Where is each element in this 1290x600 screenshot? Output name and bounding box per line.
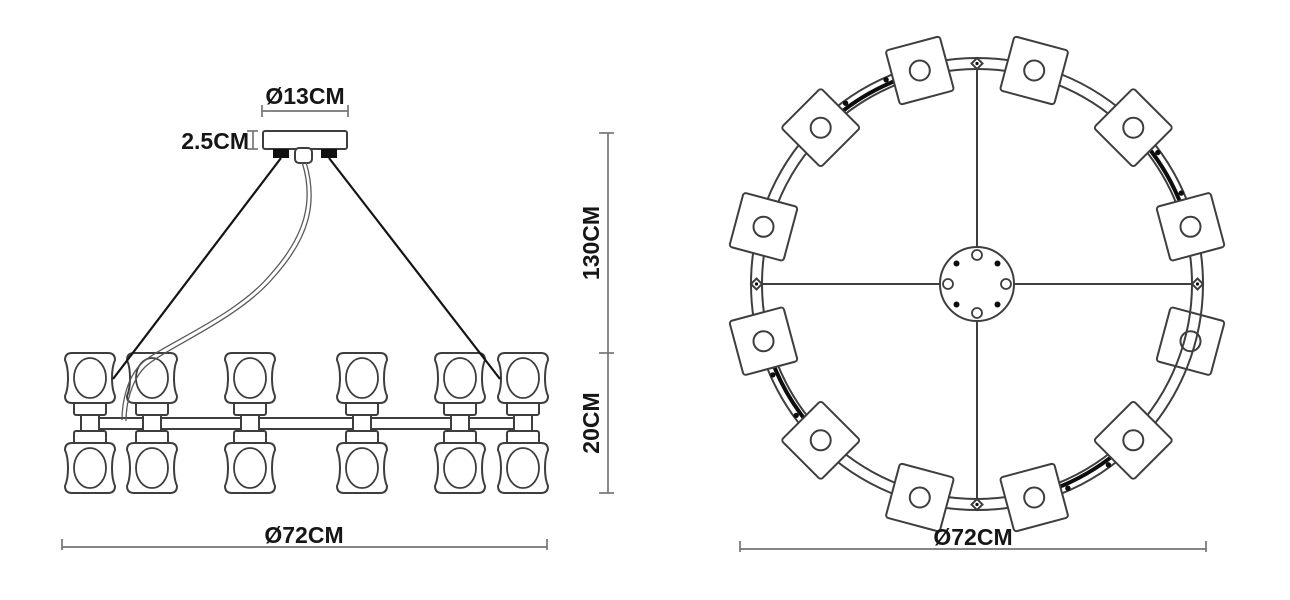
drawing-canvas: Ø13CM 2.5CM 130CM 20C xyxy=(0,0,1290,600)
cable-fixing-dot xyxy=(1179,190,1184,195)
cable-fixing-dot xyxy=(1155,150,1160,155)
lamp-shade-opening xyxy=(136,448,168,488)
lamp-shade-opening xyxy=(74,358,106,398)
side-width-label: Ø72CM xyxy=(264,522,343,548)
canopy-diameter-dimension: Ø13CM xyxy=(262,83,348,117)
canopy-mount-left xyxy=(273,149,289,158)
connector-pin xyxy=(975,62,978,65)
plan-lamp-hole xyxy=(1123,430,1143,450)
canopy-mount-right xyxy=(321,149,337,158)
lamp-shade-opening xyxy=(507,358,539,398)
canopy-height-label: 2.5CM xyxy=(181,128,249,154)
plan-lamp-hole xyxy=(1024,61,1044,81)
height-dimension: 130CM 20CM xyxy=(578,133,614,493)
suspension-cable-right xyxy=(329,158,500,379)
plan-lamp-hole xyxy=(1181,217,1201,237)
plan-lamp-hole xyxy=(1123,118,1143,138)
plan-lamp-hole xyxy=(910,61,930,81)
lamp-shade-opening xyxy=(444,358,476,398)
hub-screw-hole xyxy=(972,250,982,260)
cable-fixing-dot xyxy=(883,77,888,82)
plan-view: Ø72CM xyxy=(729,36,1225,552)
hub-screw-hole xyxy=(943,279,953,289)
side-view: Ø13CM 2.5CM 130CM 20C xyxy=(62,83,614,550)
suspension-height-label: 130CM xyxy=(578,206,604,280)
cable-fixing-dot xyxy=(843,101,848,106)
side-width-dimension: Ø72CM xyxy=(62,522,547,550)
hub-rivet xyxy=(954,302,960,308)
chandelier-technical-drawing: Ø13CM 2.5CM 130CM 20C xyxy=(0,0,1290,600)
lamp-shade-opening xyxy=(346,358,378,398)
plan-lamp-hole xyxy=(910,488,930,508)
lamp-under-ring xyxy=(1156,307,1225,376)
lamp-shade-opening xyxy=(346,448,378,488)
center-hub xyxy=(940,247,1014,321)
hub-rivet xyxy=(995,302,1001,308)
cable-fixing-dot xyxy=(1065,486,1070,491)
plan-lamp-hole xyxy=(811,430,831,450)
hub-screw-hole xyxy=(972,308,982,318)
cable-fixing-dot xyxy=(1106,462,1111,467)
canopy-diameter-label: Ø13CM xyxy=(265,83,344,109)
plan-lamp-hole xyxy=(1024,488,1044,508)
connector-pin xyxy=(1196,282,1199,285)
lamp-shade-opening xyxy=(234,448,266,488)
plan-diameter-dimension: Ø72CM xyxy=(740,524,1206,552)
lamp-shade-opening xyxy=(507,448,539,488)
ceiling-canopy xyxy=(263,131,347,163)
connector-pin xyxy=(975,503,978,506)
lamp-shade-opening xyxy=(444,448,476,488)
hub-rivet xyxy=(995,261,1001,267)
hub-screw-hole xyxy=(1001,279,1011,289)
lamp-shade-opening xyxy=(74,448,106,488)
cable-gland xyxy=(295,148,312,163)
lamp-shade-opening xyxy=(234,358,266,398)
plan-lamp-hole xyxy=(811,118,831,138)
canopy-plate xyxy=(263,131,347,149)
body-height-label: 20CM xyxy=(578,392,604,453)
connector-pin xyxy=(755,282,758,285)
plan-lamp-hole xyxy=(754,217,774,237)
cable-fixing-dot xyxy=(794,413,799,418)
cable-fixing-dot xyxy=(770,372,775,377)
hub-rivet xyxy=(954,261,960,267)
canopy-height-dimension: 2.5CM xyxy=(181,128,258,154)
plan-lamp-hole xyxy=(754,331,774,351)
plan-diameter-label: Ø72CM xyxy=(933,524,1012,550)
suspension-cable-left xyxy=(113,158,281,379)
